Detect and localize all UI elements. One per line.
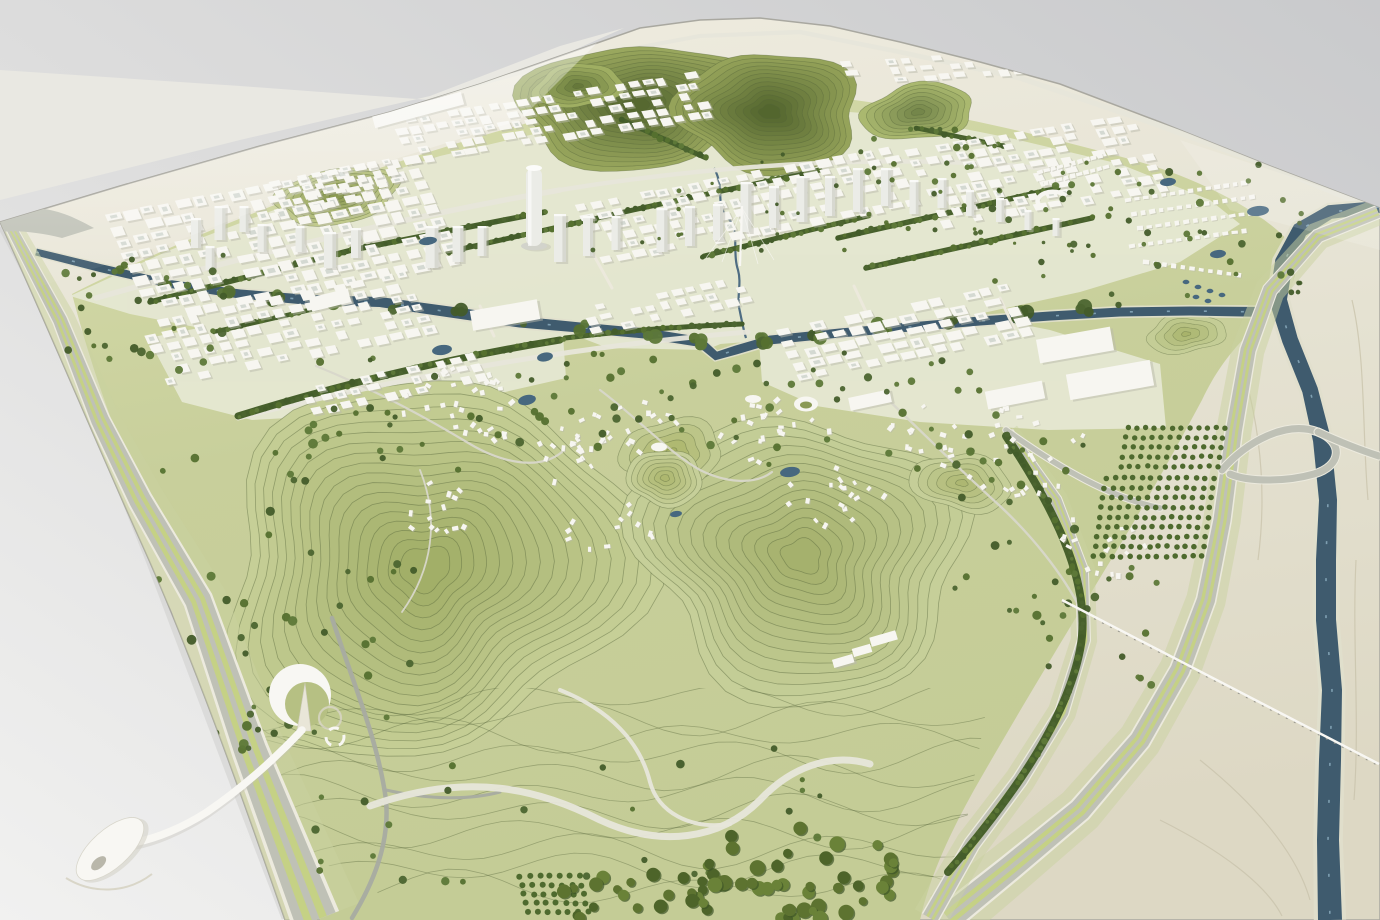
orchard-tree bbox=[1096, 524, 1102, 530]
tree bbox=[353, 410, 359, 416]
tree bbox=[610, 403, 618, 411]
orchard-tree bbox=[1144, 505, 1150, 511]
hedgerow-tree bbox=[561, 337, 566, 342]
tree bbox=[242, 721, 252, 731]
tower-roof bbox=[1025, 210, 1032, 212]
hedgerow-tree bbox=[646, 205, 651, 210]
house bbox=[1171, 263, 1176, 268]
hedgerow-tree bbox=[727, 248, 733, 254]
orchard-tree bbox=[1112, 534, 1118, 540]
forest-tree bbox=[872, 840, 882, 850]
tree bbox=[460, 879, 466, 885]
retention-pond bbox=[1219, 293, 1226, 297]
hedgerow-tree bbox=[495, 349, 500, 354]
tower bbox=[426, 226, 441, 270]
tree bbox=[301, 477, 309, 485]
tree bbox=[1090, 182, 1095, 187]
hedgerow-tree bbox=[1028, 471, 1032, 475]
hedgerow-tree bbox=[494, 238, 499, 243]
hedgerow-tree bbox=[712, 322, 719, 329]
tree bbox=[781, 152, 785, 156]
forest-tree bbox=[805, 882, 814, 891]
house bbox=[1143, 196, 1149, 200]
tree bbox=[952, 586, 957, 591]
oval-plaza bbox=[745, 395, 761, 403]
tree bbox=[753, 360, 761, 368]
hedgerow-tree bbox=[721, 248, 726, 253]
tree bbox=[898, 409, 906, 417]
tree bbox=[980, 457, 987, 464]
hedgerow-tree bbox=[543, 210, 548, 215]
hilltop-dome bbox=[651, 443, 667, 452]
tower bbox=[966, 190, 976, 218]
hedgerow-tree bbox=[520, 212, 526, 218]
orchard-tree bbox=[1105, 524, 1111, 530]
orchard-tree bbox=[1181, 494, 1187, 500]
tower-shade-side bbox=[484, 226, 487, 256]
tree bbox=[520, 806, 527, 813]
hedgerow-tree bbox=[210, 328, 215, 333]
hedgerow-tree bbox=[960, 853, 967, 860]
tower-shade-side bbox=[358, 228, 361, 258]
tree bbox=[336, 431, 342, 437]
tree bbox=[1234, 272, 1239, 277]
orchard-tree bbox=[1180, 464, 1185, 469]
tower-roof bbox=[741, 182, 752, 184]
hedgerow-tree bbox=[877, 225, 881, 229]
tree bbox=[885, 450, 892, 457]
hedgerow-tree bbox=[1000, 805, 1005, 810]
tree bbox=[1007, 540, 1012, 545]
hedgerow-tree bbox=[740, 322, 744, 326]
tree bbox=[973, 227, 977, 231]
tree bbox=[1070, 563, 1076, 569]
hedgerow-tree bbox=[632, 330, 636, 334]
orchard-tree bbox=[1141, 435, 1146, 440]
orchard-tree bbox=[1132, 435, 1137, 440]
tower-roof bbox=[685, 206, 695, 208]
tree bbox=[955, 387, 962, 394]
tree bbox=[908, 377, 916, 385]
hedgerow-tree bbox=[946, 210, 950, 214]
house bbox=[589, 446, 593, 452]
house bbox=[1043, 180, 1048, 185]
orchard-tree bbox=[1102, 543, 1108, 549]
tree bbox=[1073, 526, 1079, 532]
tree bbox=[1020, 447, 1025, 452]
tree bbox=[420, 442, 425, 447]
hedgerow-tree bbox=[283, 398, 290, 405]
tree bbox=[271, 730, 278, 737]
orchard-tree bbox=[1163, 464, 1168, 469]
hedgerow-tree bbox=[1007, 791, 1012, 796]
tree bbox=[1013, 242, 1016, 245]
orchard-tree bbox=[1196, 515, 1202, 521]
tree bbox=[368, 358, 373, 363]
tree bbox=[306, 454, 312, 460]
house bbox=[1167, 207, 1173, 211]
house bbox=[749, 403, 755, 408]
hedgerow-tree bbox=[1074, 669, 1078, 673]
hedgerow-tree bbox=[805, 229, 809, 233]
orchard-tree bbox=[1164, 543, 1170, 549]
hedgerow-tree bbox=[545, 341, 549, 345]
orchard-tree bbox=[1175, 475, 1181, 481]
orchard-tree bbox=[1174, 445, 1179, 450]
orchard-tree bbox=[1194, 475, 1200, 481]
hedgerow-tree bbox=[992, 237, 998, 243]
hedgerow-tree bbox=[508, 234, 515, 241]
tree bbox=[1109, 291, 1115, 297]
hedgerow-tree bbox=[384, 242, 388, 246]
hedgerow-tree bbox=[551, 339, 555, 343]
tree bbox=[908, 127, 913, 132]
tree bbox=[710, 182, 713, 185]
tree bbox=[653, 205, 656, 208]
tree bbox=[706, 441, 714, 449]
orchard-tree bbox=[1193, 534, 1199, 540]
tree bbox=[130, 344, 139, 353]
tree bbox=[659, 389, 664, 394]
tree bbox=[251, 622, 258, 629]
orchard-tree bbox=[1160, 425, 1165, 430]
orchard-tree bbox=[1169, 514, 1175, 520]
tree bbox=[968, 153, 974, 159]
tree bbox=[102, 343, 108, 349]
shaft-highlight bbox=[528, 168, 532, 246]
orchard-tree bbox=[1139, 534, 1145, 540]
orchard-tree bbox=[1121, 535, 1127, 541]
tree bbox=[200, 358, 208, 366]
orchard-tree bbox=[1214, 425, 1219, 430]
tree bbox=[385, 410, 391, 416]
orchard-tree bbox=[1128, 544, 1134, 550]
tree bbox=[175, 366, 183, 374]
orchard-tree bbox=[1134, 426, 1139, 431]
house bbox=[1211, 216, 1217, 221]
hedgerow-tree bbox=[1018, 457, 1024, 463]
tree bbox=[221, 253, 226, 258]
forest-tree bbox=[735, 878, 748, 891]
city-block bbox=[923, 75, 937, 81]
tree bbox=[931, 191, 937, 197]
hedgerow-tree bbox=[1068, 551, 1072, 555]
hedgerow-tree bbox=[836, 236, 841, 241]
orchard-tree bbox=[1194, 436, 1199, 441]
forest-tree bbox=[618, 890, 629, 901]
house bbox=[1213, 200, 1218, 205]
tree bbox=[1165, 168, 1173, 176]
orchard-tree bbox=[1157, 444, 1162, 449]
tree bbox=[568, 408, 575, 415]
tree bbox=[251, 705, 256, 710]
riverbank-tree bbox=[641, 327, 647, 333]
orchard-tree bbox=[1114, 524, 1120, 530]
house bbox=[1056, 483, 1060, 488]
orchard-tree bbox=[1186, 524, 1192, 530]
orchard-tree bbox=[1210, 485, 1216, 491]
forest-tree bbox=[589, 877, 603, 891]
tree bbox=[834, 183, 839, 188]
tree bbox=[606, 374, 614, 382]
tower bbox=[554, 214, 568, 264]
orchard-tree bbox=[1190, 455, 1195, 460]
orchard-tree bbox=[1191, 544, 1197, 550]
hedgerow-tree bbox=[660, 325, 665, 330]
tree bbox=[191, 454, 200, 463]
tree bbox=[914, 217, 919, 222]
hedgerow-tree bbox=[377, 243, 381, 247]
tree bbox=[951, 173, 957, 179]
hedgerow-tree bbox=[848, 234, 852, 238]
orchard-tree bbox=[1195, 525, 1201, 531]
tower bbox=[324, 232, 338, 270]
tree bbox=[734, 435, 739, 440]
tower-shade-side bbox=[944, 178, 947, 208]
tree bbox=[515, 373, 521, 379]
orchard-tree bbox=[1190, 553, 1196, 559]
orchard-tree bbox=[1091, 553, 1097, 559]
house bbox=[1137, 226, 1143, 231]
tree bbox=[944, 160, 949, 165]
orchard-tree bbox=[1203, 435, 1208, 440]
orchard-tree bbox=[1178, 425, 1183, 430]
orchard-tree bbox=[531, 892, 537, 898]
forest-tree bbox=[704, 859, 714, 869]
tree bbox=[864, 168, 871, 175]
hedgerow-tree bbox=[1017, 774, 1024, 781]
hedgerow-tree bbox=[764, 239, 770, 245]
tower bbox=[612, 216, 623, 252]
hedgerow-tree bbox=[493, 220, 498, 225]
orchard-tree bbox=[1205, 425, 1210, 430]
orchard-tree bbox=[540, 882, 546, 888]
hedgerow-tree bbox=[831, 222, 836, 227]
orchard-tree bbox=[545, 909, 551, 915]
tower-shade-side bbox=[748, 182, 751, 232]
tree bbox=[965, 430, 973, 438]
orchard-tree bbox=[1143, 425, 1148, 430]
orchard-tree bbox=[1187, 425, 1192, 430]
tree bbox=[929, 361, 934, 366]
hedgerow-tree bbox=[1074, 661, 1080, 667]
house bbox=[1193, 218, 1198, 223]
hedgerow-tree bbox=[231, 277, 236, 282]
orchard-tree bbox=[1220, 435, 1225, 440]
hedgerow-tree bbox=[1057, 706, 1063, 712]
orchard-tree bbox=[529, 882, 535, 888]
hedgerow-tree bbox=[972, 836, 976, 840]
hedgerow-tree bbox=[981, 204, 986, 209]
orchard-tree bbox=[1185, 435, 1190, 440]
orchard-tree bbox=[1120, 544, 1126, 550]
retention-pond bbox=[1193, 295, 1200, 299]
tree bbox=[780, 211, 785, 216]
tree bbox=[318, 859, 324, 865]
orchard-tree bbox=[1157, 535, 1163, 541]
tree bbox=[958, 494, 966, 502]
hedgerow-tree bbox=[1061, 221, 1065, 225]
hedgerow-tree bbox=[1051, 512, 1056, 517]
forest-tree bbox=[697, 877, 707, 887]
hedgerow-tree bbox=[864, 265, 868, 269]
tower bbox=[258, 224, 269, 254]
orchard-tree bbox=[1184, 534, 1190, 540]
hedgerow-tree bbox=[1076, 219, 1080, 223]
orchard-tree bbox=[1202, 476, 1208, 482]
orchard-tree bbox=[1158, 435, 1163, 440]
tree bbox=[771, 745, 778, 752]
tree bbox=[866, 212, 871, 217]
tree bbox=[1198, 229, 1203, 234]
tree bbox=[716, 189, 721, 194]
orchard-tree bbox=[1129, 485, 1135, 491]
tree bbox=[690, 382, 697, 389]
tree bbox=[1137, 182, 1142, 187]
orchard-tree bbox=[1156, 485, 1162, 491]
tower-shade-side bbox=[916, 180, 919, 214]
forest-tree bbox=[889, 858, 898, 867]
tree bbox=[933, 227, 938, 232]
orchard-tree bbox=[1127, 464, 1132, 469]
house bbox=[948, 447, 954, 452]
tree bbox=[989, 477, 995, 483]
hedgerow-tree bbox=[576, 220, 582, 226]
tower-roof bbox=[612, 216, 621, 218]
hedgerow-tree bbox=[714, 248, 720, 254]
tower-roof bbox=[1053, 218, 1060, 220]
tree bbox=[1287, 269, 1294, 276]
hedgerow-tree bbox=[508, 217, 512, 221]
house bbox=[1170, 192, 1176, 196]
hedgerow-tree bbox=[689, 149, 694, 154]
tree bbox=[953, 144, 961, 152]
hedgerow-tree bbox=[673, 141, 677, 145]
tree bbox=[310, 421, 318, 429]
forest-tree bbox=[833, 883, 843, 893]
tree bbox=[273, 450, 279, 456]
tree bbox=[963, 573, 970, 580]
hedgerow-tree bbox=[1022, 768, 1027, 773]
orchard-tree bbox=[1122, 475, 1128, 481]
orchard-tree bbox=[1192, 444, 1197, 449]
hedgerow-tree bbox=[897, 257, 902, 262]
hedgerow-tree bbox=[769, 238, 774, 243]
forest-tree bbox=[654, 900, 668, 914]
tree bbox=[1108, 206, 1113, 211]
hedgerow-tree bbox=[724, 321, 729, 326]
stadium-field bbox=[800, 402, 812, 409]
city-block bbox=[920, 65, 934, 70]
hedgerow-tree bbox=[1014, 452, 1019, 457]
forest-tree bbox=[819, 851, 833, 865]
orchard-tree bbox=[1139, 445, 1144, 450]
hedgerow-tree bbox=[1003, 798, 1008, 803]
hedgerow-tree bbox=[678, 143, 684, 149]
orchard-tree bbox=[1120, 455, 1125, 460]
tree bbox=[764, 381, 770, 387]
hedgerow-tree bbox=[1068, 220, 1073, 225]
tree bbox=[989, 205, 997, 213]
tower-roof bbox=[583, 216, 593, 218]
hedgerow-tree bbox=[950, 244, 957, 251]
tree bbox=[515, 438, 524, 447]
tree bbox=[890, 177, 895, 182]
tree bbox=[800, 788, 805, 793]
orchard-tree bbox=[1217, 455, 1222, 460]
hedgerow-tree bbox=[1052, 517, 1059, 524]
hedgerow-tree bbox=[878, 264, 882, 268]
orchard-tree bbox=[1147, 485, 1153, 491]
orchard-tree bbox=[1109, 495, 1115, 501]
orchard-tree bbox=[1182, 544, 1188, 550]
forest-tree bbox=[626, 878, 635, 887]
house bbox=[1043, 483, 1047, 488]
orchard-tree bbox=[1098, 504, 1104, 510]
tree bbox=[1007, 448, 1013, 454]
tree bbox=[617, 367, 625, 375]
tree bbox=[864, 373, 872, 381]
hedgerow-tree bbox=[967, 245, 971, 249]
tree bbox=[321, 629, 328, 636]
tower bbox=[881, 168, 893, 208]
orchard-tree bbox=[1153, 464, 1158, 469]
orchard-tree bbox=[578, 883, 584, 889]
tree bbox=[184, 282, 191, 289]
hedgerow-tree bbox=[276, 402, 282, 408]
house bbox=[1217, 270, 1223, 276]
forest-tree bbox=[708, 878, 723, 893]
tower-top bbox=[526, 165, 542, 171]
tree bbox=[1147, 681, 1155, 689]
house bbox=[1231, 230, 1238, 234]
orchard-tree bbox=[1155, 455, 1160, 460]
tree bbox=[676, 760, 685, 769]
orchard-tree bbox=[1094, 534, 1100, 540]
tree bbox=[1298, 281, 1302, 285]
house bbox=[1152, 194, 1158, 199]
tower-shade-side bbox=[460, 226, 463, 262]
orchard-tree bbox=[1103, 534, 1109, 540]
orchard-tree bbox=[1153, 505, 1159, 511]
orchard-tree bbox=[1173, 494, 1179, 500]
orchard-tree bbox=[1127, 554, 1133, 560]
hedgerow-tree bbox=[697, 151, 704, 158]
tree bbox=[1039, 437, 1047, 445]
hedgerow-tree bbox=[522, 342, 528, 348]
tower-shade-side bbox=[618, 216, 621, 250]
hedgerow-tree bbox=[612, 328, 618, 334]
hedgerow-tree bbox=[489, 240, 493, 244]
orchard-tree bbox=[1174, 485, 1180, 491]
orchard-tree bbox=[1172, 553, 1178, 559]
tree bbox=[969, 164, 974, 169]
hedgerow-tree bbox=[467, 243, 473, 249]
tree bbox=[640, 240, 644, 244]
hedgerow-tree bbox=[1046, 733, 1051, 738]
tree bbox=[600, 352, 605, 357]
house bbox=[1116, 573, 1121, 579]
city-block bbox=[844, 70, 859, 76]
tree bbox=[364, 671, 372, 679]
tree bbox=[995, 459, 1003, 467]
orchard-tree bbox=[567, 873, 573, 879]
hedgerow-tree bbox=[428, 362, 433, 367]
hedgerow-tree bbox=[633, 206, 638, 211]
forest-tree bbox=[747, 878, 758, 889]
tower-roof bbox=[881, 168, 891, 170]
house bbox=[1166, 239, 1173, 243]
